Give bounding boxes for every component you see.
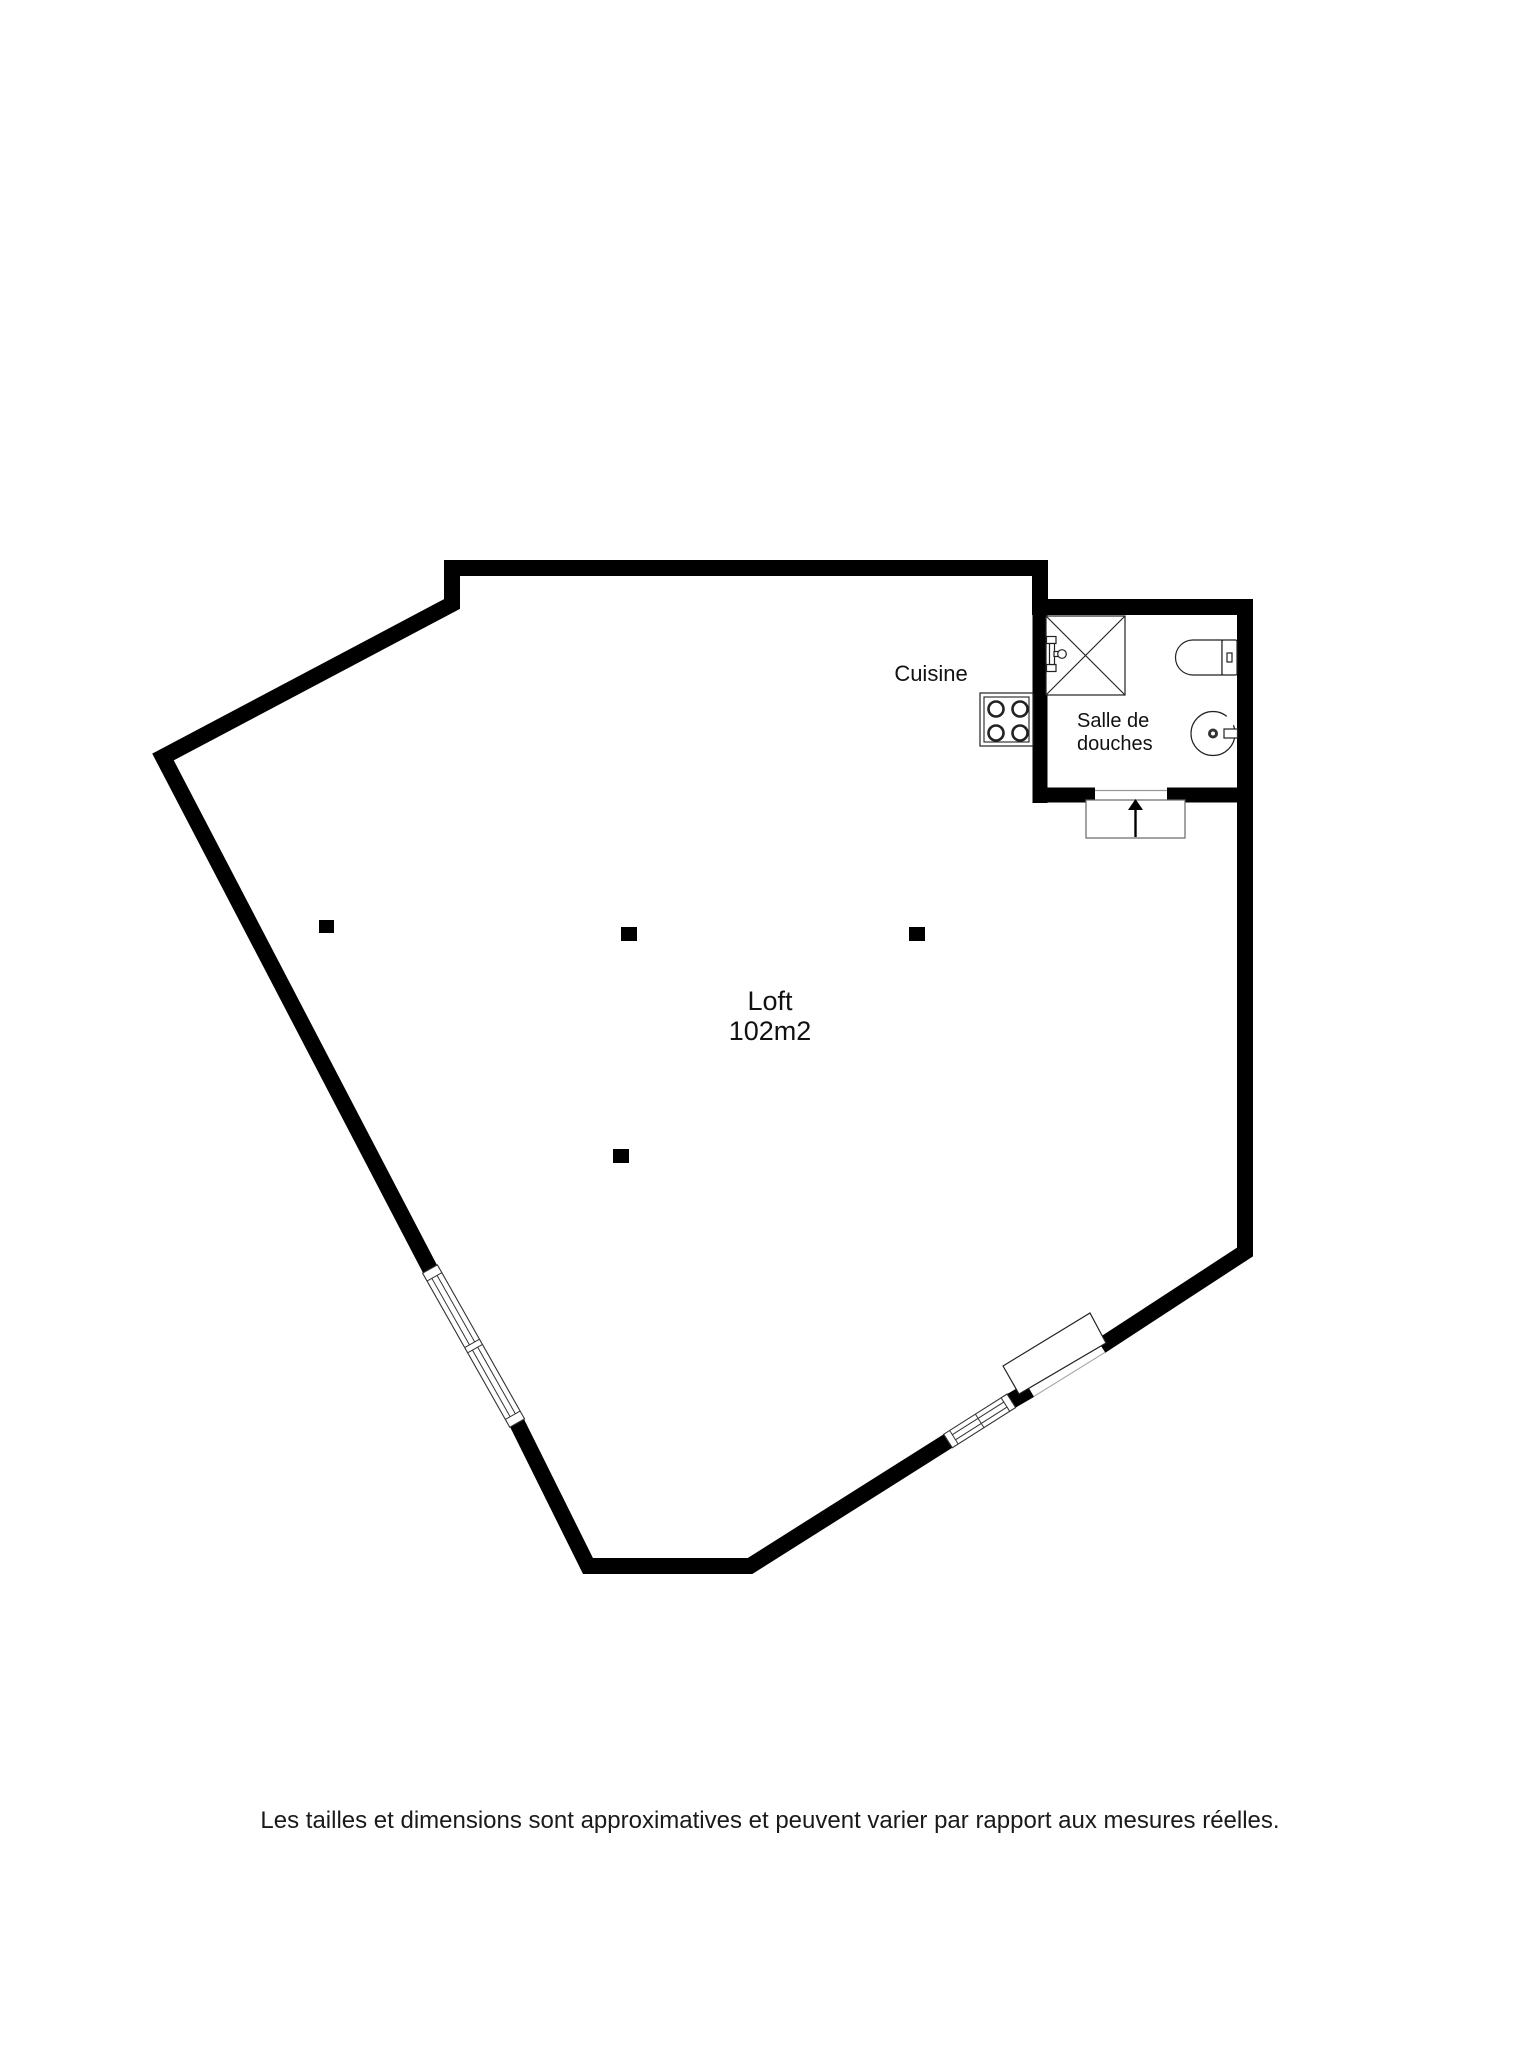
loft-area-label: 102m2	[729, 1016, 812, 1046]
disclaimer-text: Les tailles et dimensions sont approxima…	[260, 1807, 1279, 1834]
floorplan-svg: Cuisine Salle de douches Loft 102m2 Les …	[0, 0, 1520, 2047]
loft-label: Loft	[747, 986, 793, 1016]
outer-wall-bottom	[517, 1423, 948, 1566]
door-icon	[1003, 1313, 1106, 1396]
shower-room-label-line1: Salle de	[1077, 710, 1149, 732]
door-leaf	[1003, 1313, 1106, 1394]
floorplan-page: Cuisine Salle de douches Loft 102m2 Les …	[0, 0, 1520, 2047]
shower-room-label-line2: douches	[1077, 733, 1153, 755]
pillar-icon	[909, 927, 925, 941]
stove-icon	[980, 693, 1033, 746]
sink-icon	[1191, 712, 1238, 756]
pillars	[319, 920, 925, 1163]
shower-icon	[1046, 616, 1125, 695]
pillar-icon	[319, 920, 334, 933]
window-icon	[423, 1265, 525, 1427]
toilet-icon	[1176, 640, 1237, 675]
window-icon	[944, 1394, 1016, 1448]
kitchen-label: Cuisine	[894, 661, 967, 686]
pillar-icon	[621, 927, 637, 941]
pillar-icon	[613, 1149, 629, 1163]
